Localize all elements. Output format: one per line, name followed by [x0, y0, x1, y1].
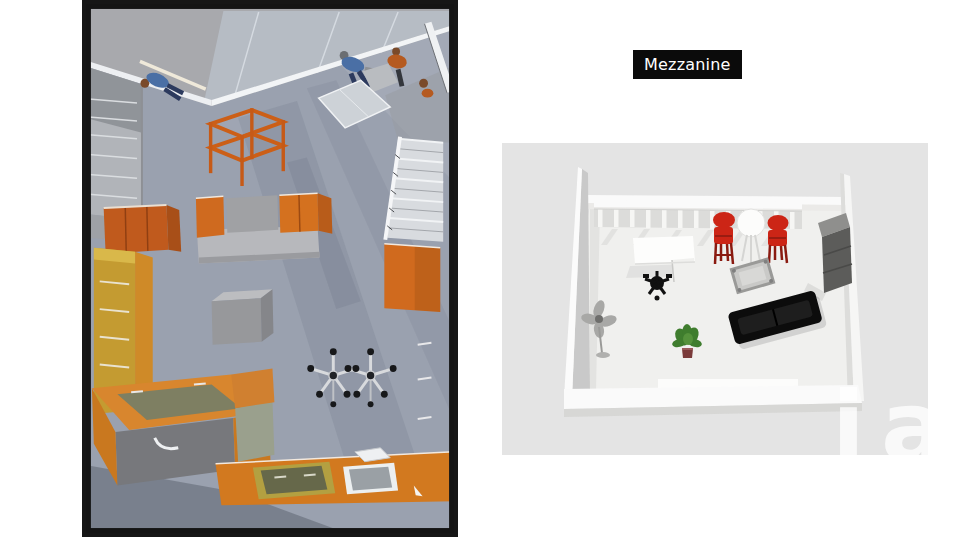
workshop-render — [82, 0, 458, 537]
desk — [626, 236, 696, 282]
wall-cabinet — [104, 205, 182, 254]
island-cabinet — [196, 193, 332, 263]
workshop-render-svg — [86, 4, 454, 533]
orange-wall-panel — [384, 244, 440, 312]
mezzanine-label: Mezzanine — [633, 50, 742, 79]
mezzanine-render: iad — [502, 143, 928, 455]
page: Mezzanine — [0, 0, 960, 540]
mezzanine-label-text: Mezzanine — [644, 55, 731, 74]
mezzanine-render-svg — [502, 143, 928, 455]
storage-box — [212, 289, 274, 344]
